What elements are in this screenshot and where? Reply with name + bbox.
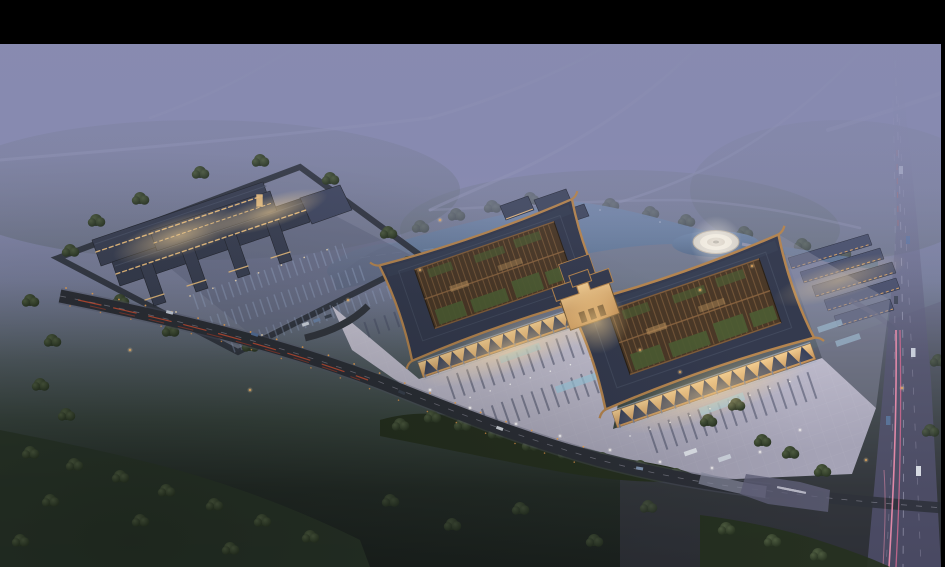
aerial-rendering xyxy=(0,0,945,567)
right-letterbox-bar xyxy=(941,0,945,567)
rendering-canvas xyxy=(0,0,945,567)
top-letterbox-bar xyxy=(0,0,945,44)
